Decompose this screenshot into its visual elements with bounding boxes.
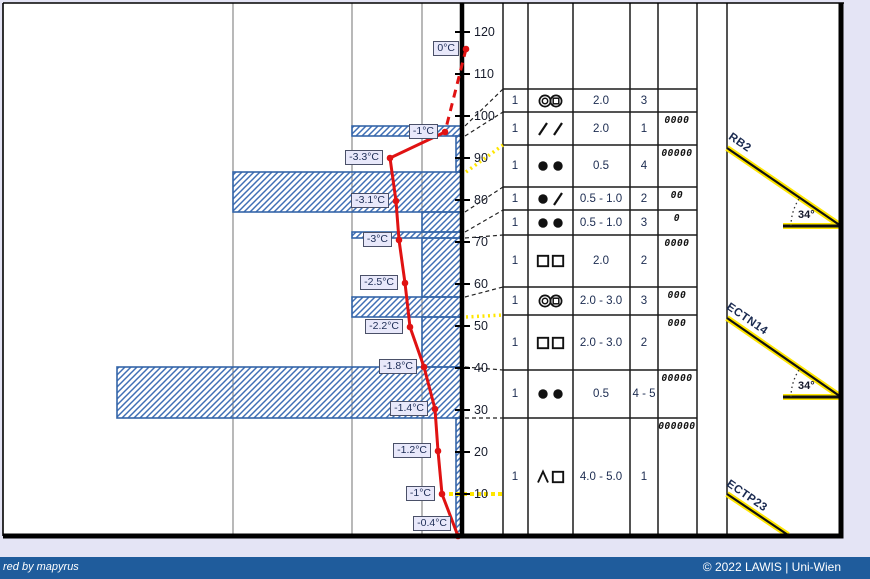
layer-wetness: 1 (503, 335, 527, 351)
temp-point (402, 280, 409, 287)
footer-credit: red by mapyrus (3, 561, 79, 573)
hardness-bar (422, 317, 461, 367)
temp-label: -3°C (363, 232, 392, 247)
layer-hardness: 1 (630, 121, 658, 137)
grain-size: 0.5 - 1.0 (573, 215, 629, 231)
snow-profile-page: 1201101009080706050403020100°C-1°C-3.3°C… (0, 0, 870, 579)
layer-hardness: 4 (630, 158, 658, 174)
grain-shape-symbols (528, 157, 573, 180)
grain-shape-symbols (528, 92, 573, 115)
test-angle-label: 34° (798, 209, 815, 221)
temp-label: -2.5°C (360, 275, 398, 290)
footer-bar: red by mapyrus © 2022 LAWIS | Uni-Wien (0, 557, 870, 579)
y-tick-label: 80 (474, 193, 488, 207)
layer-hardness: 3 (630, 293, 658, 309)
layer-hardness: 2 (630, 191, 658, 207)
moisture-marks: 0 (658, 213, 696, 224)
moisture-marks: 00000 (658, 373, 696, 384)
y-tick-label: 100 (474, 109, 495, 123)
y-tick-label: 40 (474, 361, 488, 375)
moisture-marks: 00000 (658, 148, 696, 159)
grain-shape-symbols (528, 334, 573, 357)
y-tick-label: 70 (474, 235, 488, 249)
layer-hardness: 3 (630, 215, 658, 231)
layer-connector (465, 210, 503, 232)
grain-size: 2.0 - 3.0 (573, 293, 629, 309)
y-tick-label: 50 (474, 319, 488, 333)
moisture-marks: 000 (658, 318, 696, 329)
grain-shape-symbols (528, 385, 573, 408)
temp-point (439, 491, 446, 498)
temp-point (442, 129, 449, 136)
flagged-layer-connector (466, 315, 503, 317)
layer-wetness: 1 (503, 191, 527, 207)
hardness-bar (422, 238, 461, 297)
grain-shape-symbols (528, 468, 573, 491)
temp-label: -2.2°C (365, 319, 403, 334)
layer-wetness: 1 (503, 293, 527, 309)
moisture-marks: 000000 (658, 421, 696, 432)
grain-shape-symbols (528, 214, 573, 237)
temp-label: -3.1°C (351, 193, 389, 208)
grain-size: 2.0 (573, 121, 629, 137)
moisture-marks: 0000 (658, 115, 696, 126)
layer-hardness: 1 (630, 469, 658, 485)
moisture-marks: 0000 (658, 238, 696, 249)
grain-shape-symbols (528, 292, 573, 315)
layer-wetness: 1 (503, 386, 527, 402)
temp-label: -1°C (406, 486, 435, 501)
temp-point (435, 448, 442, 455)
y-tick-label: 30 (474, 403, 488, 417)
temp-point (387, 155, 394, 162)
moisture-marks: 00 (658, 190, 696, 201)
hardness-bar (233, 172, 461, 212)
temp-point (432, 406, 439, 413)
grain-size: 0.5 - 1.0 (573, 191, 629, 207)
grain-shape-symbols (528, 120, 573, 143)
temp-label: -0.4°C (413, 516, 451, 531)
grain-shape-symbols (528, 190, 573, 213)
layer-hardness: 4 - 5 (630, 386, 658, 402)
y-tick-label: 60 (474, 277, 488, 291)
layer-wetness: 1 (503, 93, 527, 109)
temp-point (407, 324, 414, 331)
temp-point (393, 198, 400, 205)
temp-label: -1°C (409, 124, 438, 139)
temp-point (421, 364, 428, 371)
y-tick-label: 110 (474, 67, 494, 81)
y-tick-label: 90 (474, 151, 488, 165)
footer-copyright: © 2022 LAWIS | Uni-Wien (703, 560, 841, 574)
temp-label: -1.2°C (393, 443, 431, 458)
temp-point (396, 237, 403, 244)
layer-hardness: 3 (630, 93, 658, 109)
temp-label: -3.3°C (345, 150, 383, 165)
grain-size: 0.5 (573, 386, 629, 402)
layer-hardness: 2 (630, 335, 658, 351)
layer-wetness: 1 (503, 121, 527, 137)
y-tick-label: 20 (474, 445, 488, 459)
grain-size: 2.0 (573, 253, 629, 269)
temp-label: -1.8°C (379, 359, 417, 374)
layer-hardness: 2 (630, 253, 658, 269)
layer-wetness: 1 (503, 253, 527, 269)
layer-wetness: 1 (503, 215, 527, 231)
y-tick-label: 120 (474, 25, 495, 39)
moisture-marks: 000 (658, 290, 696, 301)
grain-size: 0.5 (573, 158, 629, 174)
layer-wetness: 1 (503, 469, 527, 485)
temp-label: 0°C (433, 41, 459, 56)
temp-label: -1.4°C (390, 401, 428, 416)
temp-point (463, 46, 470, 53)
hardness-bar (422, 212, 461, 232)
grain-size: 2.0 (573, 93, 629, 109)
y-tick-label: 10 (474, 487, 488, 501)
grain-size: 4.0 - 5.0 (573, 469, 629, 485)
grain-shape-symbols (528, 252, 573, 275)
test-angle-label: 34° (798, 380, 815, 392)
layer-wetness: 1 (503, 158, 527, 174)
grain-size: 2.0 - 3.0 (573, 335, 629, 351)
